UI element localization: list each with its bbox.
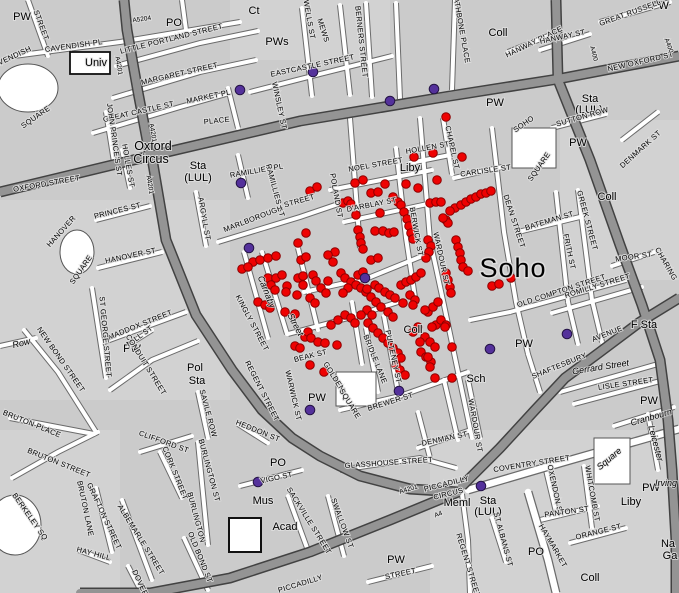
place-label: Circus — [133, 152, 168, 166]
cholera-case-dot — [324, 277, 333, 286]
academy-building — [229, 518, 261, 552]
place-label: Ga — [663, 550, 679, 562]
place-label: Sta — [190, 160, 207, 172]
cholera-case-dot — [390, 228, 399, 237]
cholera-case-dot — [433, 176, 442, 185]
cavendish-square — [0, 64, 58, 112]
place-label: PW — [387, 554, 405, 566]
cholera-case-dot — [351, 179, 360, 188]
cholera-case-dot — [446, 207, 455, 216]
water-pump-dot — [485, 344, 495, 354]
place-label: PW — [515, 338, 533, 350]
cholera-case-dot — [426, 363, 435, 372]
cholera-case-dot — [402, 180, 411, 189]
cholera-case-dot — [278, 271, 287, 280]
place-label: Sch — [467, 373, 486, 385]
soho-square — [512, 128, 556, 168]
cholera-case-dot — [376, 209, 385, 218]
cholera-case-dot — [439, 214, 448, 223]
cholera-case-dot — [391, 294, 400, 303]
cholera-case-dot — [437, 198, 446, 207]
cholera-case-dot — [448, 343, 457, 352]
cholera-case-dot — [306, 361, 315, 370]
cholera-case-dot — [416, 338, 425, 347]
cholera-case-dot — [487, 187, 496, 196]
place-label: PW — [308, 392, 326, 404]
cholera-case-dot — [389, 313, 398, 322]
cholera-case-dot — [324, 251, 333, 260]
place-label: Irving — [655, 478, 677, 488]
cholera-case-dot — [442, 113, 451, 122]
water-pump-dot — [235, 85, 245, 95]
water-pump-dot — [360, 273, 370, 283]
cholera-case-dot — [434, 298, 443, 307]
cholera-case-dot — [414, 184, 423, 193]
cholera-case-dot — [368, 311, 377, 320]
cholera-case-dot — [363, 285, 372, 294]
place-label: Liby — [621, 496, 642, 508]
place-label: Ct — [249, 5, 260, 17]
cholera-case-dot — [299, 272, 308, 281]
cholera-case-dot — [333, 341, 342, 350]
water-pump-dot — [476, 481, 486, 491]
place-label: Acad — [272, 521, 297, 533]
cholera-case-dot — [272, 252, 281, 261]
place-label: Pol — [187, 362, 203, 374]
cholera-case-dot — [282, 288, 291, 297]
cholera-case-dot — [296, 344, 305, 353]
cholera-case-dot — [357, 311, 366, 320]
cholera-case-dot — [351, 319, 360, 328]
cholera-case-dot — [374, 188, 383, 197]
place-label: Coll — [404, 324, 423, 336]
cholera-case-dot — [359, 245, 368, 254]
water-pump-dot — [429, 84, 439, 94]
cholera-case-dot — [299, 281, 308, 290]
place-label: Coll — [598, 191, 617, 203]
place-label: PO — [528, 546, 544, 558]
water-pump-dot — [236, 178, 246, 188]
place-label: Coll — [581, 572, 600, 584]
place-label: PW — [640, 395, 658, 407]
place-label: PWs — [265, 36, 289, 48]
cholera-case-dot — [302, 253, 311, 262]
cholera-case-dot — [409, 301, 418, 310]
cholera-case-dot — [264, 254, 273, 263]
cholera-case-dot — [448, 374, 457, 383]
place-label: Sta — [189, 375, 206, 387]
water-pump-dot — [305, 405, 315, 415]
place-label: Meml — [444, 497, 471, 509]
soho-cholera-map: PWPOCtPWsUnivCollPWSta(LUL)PWLibyOxfordC… — [0, 0, 679, 593]
place-label: PW — [13, 11, 31, 23]
place-label: Univ — [85, 57, 108, 69]
cholera-case-dot — [321, 339, 330, 348]
place-label: Na — [661, 538, 676, 550]
cholera-case-dot — [294, 239, 303, 248]
water-pump-dot — [385, 96, 395, 106]
cholera-case-dot — [313, 183, 322, 192]
cholera-case-dot — [339, 289, 348, 298]
cholera-case-dot — [447, 289, 456, 298]
place-label: F Sta — [631, 319, 658, 331]
cholera-case-dot — [311, 299, 320, 308]
place-label: PO — [270, 457, 286, 469]
cholera-case-dot — [322, 289, 331, 298]
water-pump-dot — [562, 329, 572, 339]
cholera-case-dot — [244, 263, 253, 272]
cholera-case-dot — [374, 254, 383, 263]
cholera-case-dot — [399, 299, 408, 308]
cholera-case-dot — [428, 323, 437, 332]
cholera-case-dot — [302, 229, 311, 238]
cholera-case-dot — [417, 269, 426, 278]
place-label: PO — [166, 17, 182, 29]
region-label-soho: Soho — [479, 253, 546, 283]
place-label: PW — [569, 137, 587, 149]
place-label: Mus — [253, 495, 274, 507]
cholera-case-dot — [359, 176, 368, 185]
cholera-case-dot — [431, 343, 440, 352]
place-label: PW — [486, 97, 504, 109]
cholera-case-dot — [431, 374, 440, 383]
cholera-case-dot — [371, 227, 380, 236]
cholera-case-dot — [256, 256, 265, 265]
cholera-case-dot — [464, 267, 473, 276]
place-label: (LUL) — [184, 172, 212, 184]
place-label: Coll — [489, 27, 508, 39]
cholera-case-dot — [293, 291, 302, 300]
cholera-case-dot — [424, 353, 433, 362]
cholera-case-dot — [441, 323, 450, 332]
water-pump-dot — [244, 243, 254, 253]
cholera-case-dot — [421, 306, 430, 315]
cholera-case-dot — [381, 180, 390, 189]
map-canvas: PWPOCtPWsUnivCollPWSta(LUL)PWLibyOxfordC… — [0, 0, 679, 593]
